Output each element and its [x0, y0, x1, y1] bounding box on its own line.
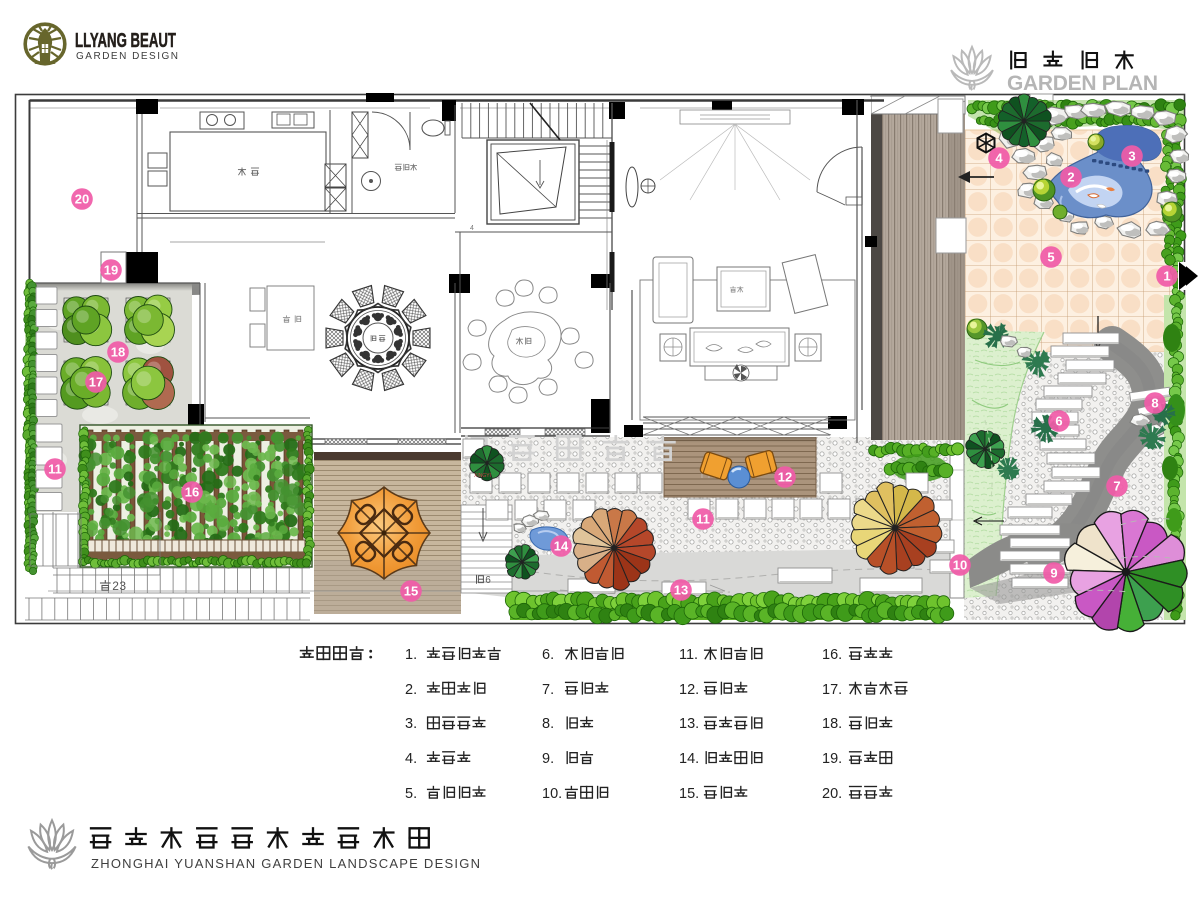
svg-text:5: 5 — [1047, 250, 1054, 265]
svg-text:2.: 2. — [405, 682, 417, 698]
svg-text:9: 9 — [1050, 566, 1057, 581]
svg-text:6: 6 — [485, 575, 491, 586]
svg-text:18.: 18. — [822, 716, 842, 732]
svg-text:15.: 15. — [679, 786, 699, 802]
svg-text:16: 16 — [185, 485, 199, 500]
svg-text:3: 3 — [1128, 149, 1135, 164]
svg-text:10: 10 — [953, 558, 967, 573]
svg-text:5.: 5. — [405, 786, 417, 802]
svg-text:GARDEN DESIGN: GARDEN DESIGN — [76, 51, 178, 62]
svg-text:14.: 14. — [679, 751, 699, 767]
svg-text:12.: 12. — [679, 682, 699, 698]
svg-text:19.: 19. — [822, 751, 842, 767]
svg-text:12: 12 — [778, 470, 792, 485]
svg-text:13: 13 — [674, 583, 688, 598]
svg-text:3.: 3. — [405, 716, 417, 732]
svg-text:13.: 13. — [679, 716, 699, 732]
svg-text:2: 2 — [1067, 170, 1074, 185]
svg-text:18: 18 — [111, 345, 125, 360]
svg-text:XINGYI: XINGYI — [474, 473, 491, 479]
svg-text:8.: 8. — [542, 716, 554, 732]
svg-text:6: 6 — [1055, 414, 1062, 429]
svg-text:7.: 7. — [542, 682, 554, 698]
svg-text:20.: 20. — [822, 786, 842, 802]
svg-text:1: 1 — [1163, 269, 1170, 284]
svg-text:4: 4 — [470, 225, 474, 232]
svg-text:16.: 16. — [822, 647, 842, 663]
svg-text:19: 19 — [104, 263, 118, 278]
svg-text:LLYANG BEAUT: LLYANG BEAUT — [75, 30, 176, 52]
svg-text:7: 7 — [1113, 479, 1120, 494]
svg-text:4.: 4. — [405, 751, 417, 767]
svg-text:11: 11 — [696, 512, 710, 527]
svg-text:20: 20 — [75, 192, 89, 207]
svg-text:17: 17 — [89, 375, 103, 390]
svg-text:15: 15 — [404, 584, 418, 599]
svg-text:11.: 11. — [679, 647, 698, 663]
svg-text:ZHONGHAI YUANSHAN GARDEN LANDS: ZHONGHAI YUANSHAN GARDEN LANDSCAPE DESIG… — [91, 856, 480, 871]
svg-text:1.: 1. — [405, 647, 417, 663]
svg-text:6.: 6. — [542, 647, 554, 663]
svg-text:11: 11 — [48, 462, 62, 477]
svg-text:GARDEN PLAN: GARDEN PLAN — [1007, 72, 1158, 95]
svg-text:17.: 17. — [822, 682, 842, 698]
svg-text:9.: 9. — [542, 751, 554, 767]
svg-text:10.: 10. — [542, 786, 562, 802]
svg-text:14: 14 — [554, 539, 569, 554]
svg-text:4: 4 — [995, 151, 1003, 166]
svg-text:8: 8 — [1151, 396, 1158, 411]
